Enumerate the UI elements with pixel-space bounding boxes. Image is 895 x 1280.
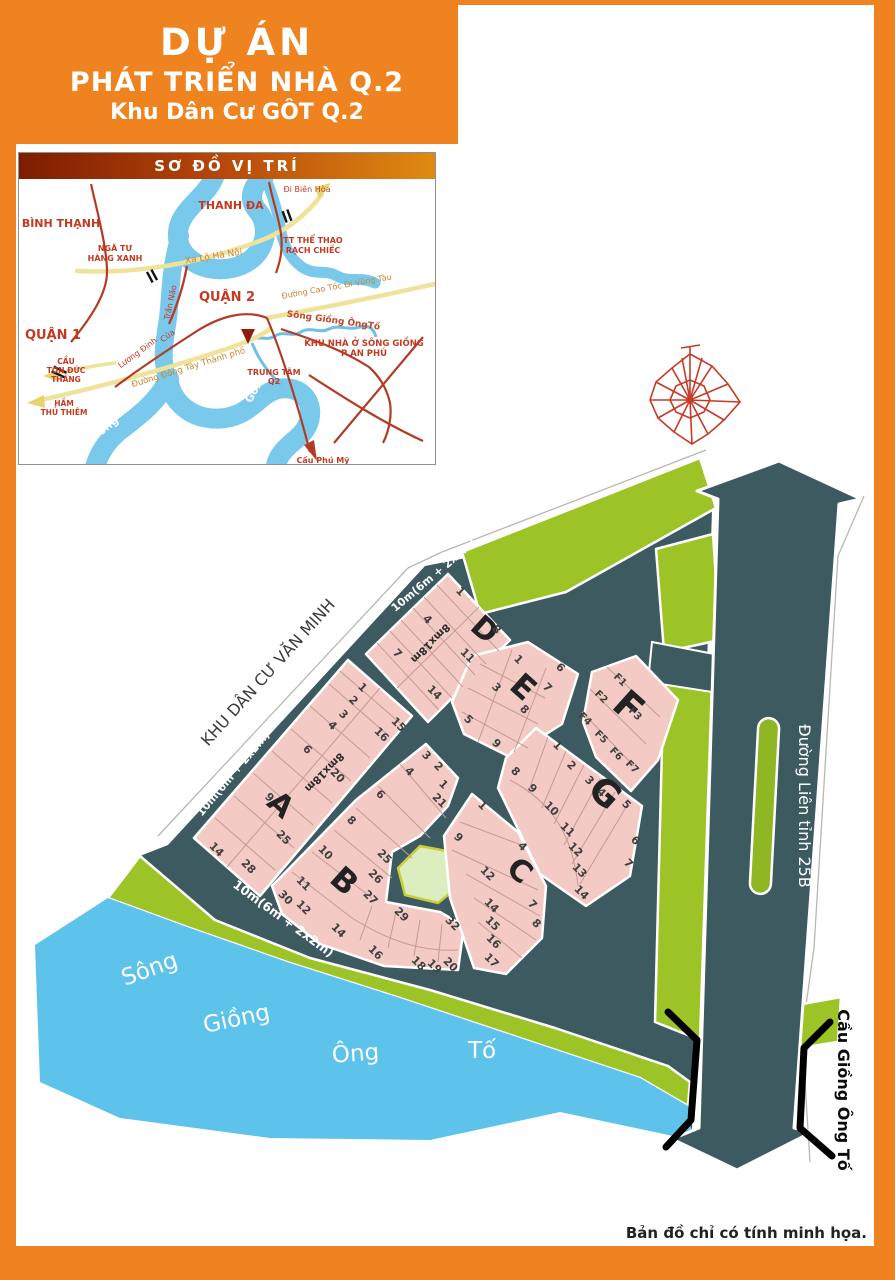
location-map-title: SƠ ĐỒ VỊ TRÍ xyxy=(19,153,435,179)
map-label: Đi Biên Hòa xyxy=(283,184,330,194)
map-label: CẦU xyxy=(57,356,74,366)
green-strip-right-upper xyxy=(656,534,720,652)
disclaimer-note: Bản đồ chỉ có tính minh họa. xyxy=(626,1224,867,1242)
location-map: BÌNH THẠNHTHANH ĐAĐi Biên HòaNGÃ TƯHÀNG … xyxy=(19,179,435,464)
road-label: Đường Liên tỉnh 25B xyxy=(795,724,814,888)
map-label: Q2 xyxy=(268,377,280,386)
map-label: HẦM xyxy=(54,398,74,408)
map-label: Cầu Phú Mỹ xyxy=(297,455,351,464)
map-label: QUẬN 1 xyxy=(25,327,81,343)
map-label: HÀNG XANH xyxy=(88,252,143,263)
compass-icon xyxy=(650,345,740,444)
map-label: NGÃ TƯ xyxy=(98,243,133,253)
river-label: Ông xyxy=(331,1037,380,1068)
annotation-label: Cầu Giồng Ông Tố xyxy=(834,1009,853,1170)
location-map-panel: SƠ ĐỒ VỊ TRÍ xyxy=(18,152,436,465)
map-label: TÔN ĐỨC xyxy=(47,366,86,375)
map-label: QUẬN 2 xyxy=(199,289,255,305)
river-label: Tố xyxy=(467,1038,496,1064)
map-label: P AN PHÚ xyxy=(341,347,387,359)
map-label: BÌNH THẠNH xyxy=(22,217,100,230)
map-label: THANH ĐA xyxy=(198,199,264,212)
map-label: THẮNG xyxy=(51,374,81,384)
map-label: TRUNG TÂM xyxy=(247,366,300,377)
map-label: THỦ THIÊM xyxy=(41,407,88,417)
